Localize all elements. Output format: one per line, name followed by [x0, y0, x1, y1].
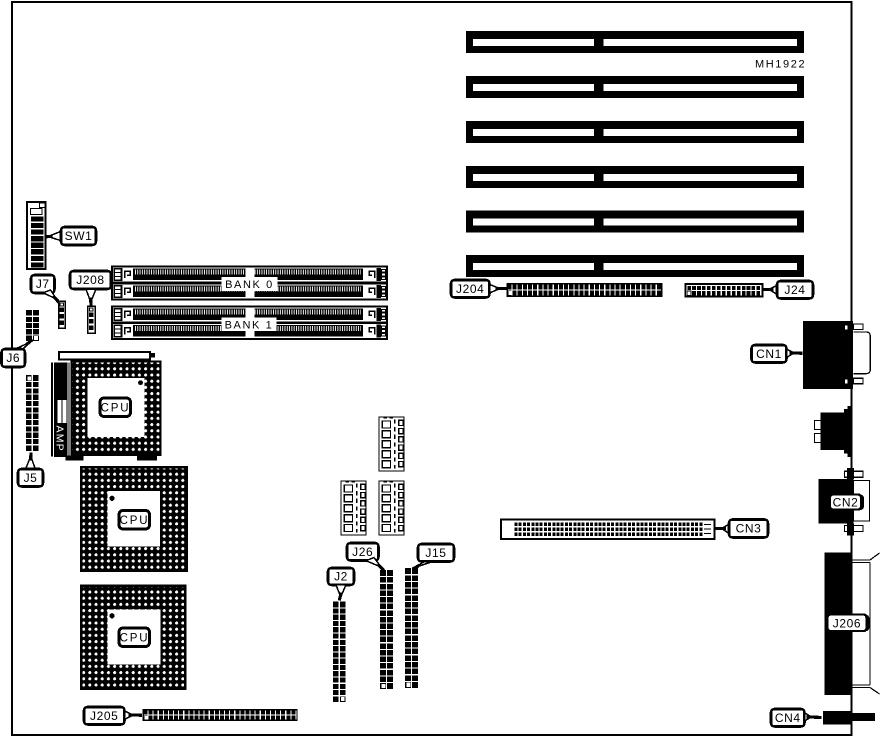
svg-text:CPU: CPU: [120, 515, 150, 527]
svg-text:CN1: CN1: [756, 347, 782, 361]
svg-text:BANK 1: BANK 1: [225, 320, 274, 332]
svg-text:SW1: SW1: [65, 229, 93, 243]
svg-text:MH1922: MH1922: [755, 59, 806, 71]
svg-text:J7: J7: [36, 277, 50, 291]
svg-text:AMP: AMP: [54, 426, 66, 452]
svg-text:J205: J205: [90, 709, 118, 723]
svg-text:J204: J204: [456, 282, 484, 296]
svg-text:J5: J5: [24, 471, 38, 485]
svg-text:J15: J15: [425, 546, 446, 560]
svg-text:CPU: CPU: [120, 633, 150, 645]
svg-text:J2: J2: [334, 570, 348, 584]
svg-text:J206: J206: [833, 616, 861, 630]
svg-text:J24: J24: [784, 283, 805, 297]
svg-text:CN2: CN2: [833, 495, 859, 509]
svg-text:J6: J6: [6, 351, 20, 365]
svg-text:J208: J208: [76, 273, 104, 287]
svg-text:BANK 0: BANK 0: [225, 279, 274, 291]
svg-text:CN3: CN3: [736, 522, 762, 536]
svg-text:CPU: CPU: [101, 403, 131, 415]
svg-text:J26: J26: [352, 545, 373, 559]
svg-text:CN4: CN4: [775, 711, 801, 725]
